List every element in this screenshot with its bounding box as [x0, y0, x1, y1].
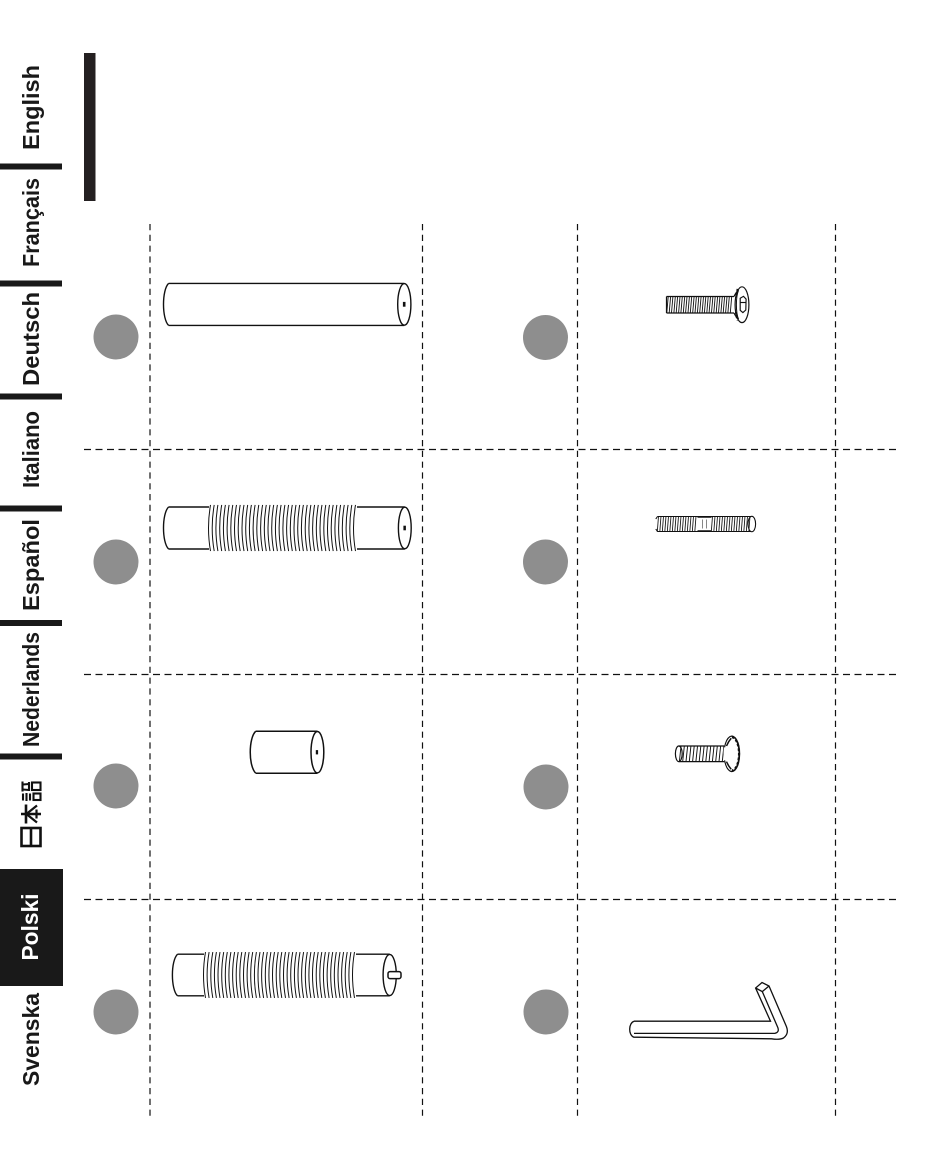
svg-text:Français: Français [18, 178, 44, 267]
svg-text:Italiano: Italiano [18, 411, 44, 488]
svg-text:Svenska: Svenska [18, 993, 44, 1086]
svg-text:English: English [18, 65, 44, 150]
svg-text:Español: Español [18, 519, 44, 611]
svg-text:Deutsch: Deutsch [18, 292, 44, 386]
svg-text:Polski: Polski [17, 894, 43, 961]
svg-text:Nederlands: Nederlands [18, 632, 44, 747]
